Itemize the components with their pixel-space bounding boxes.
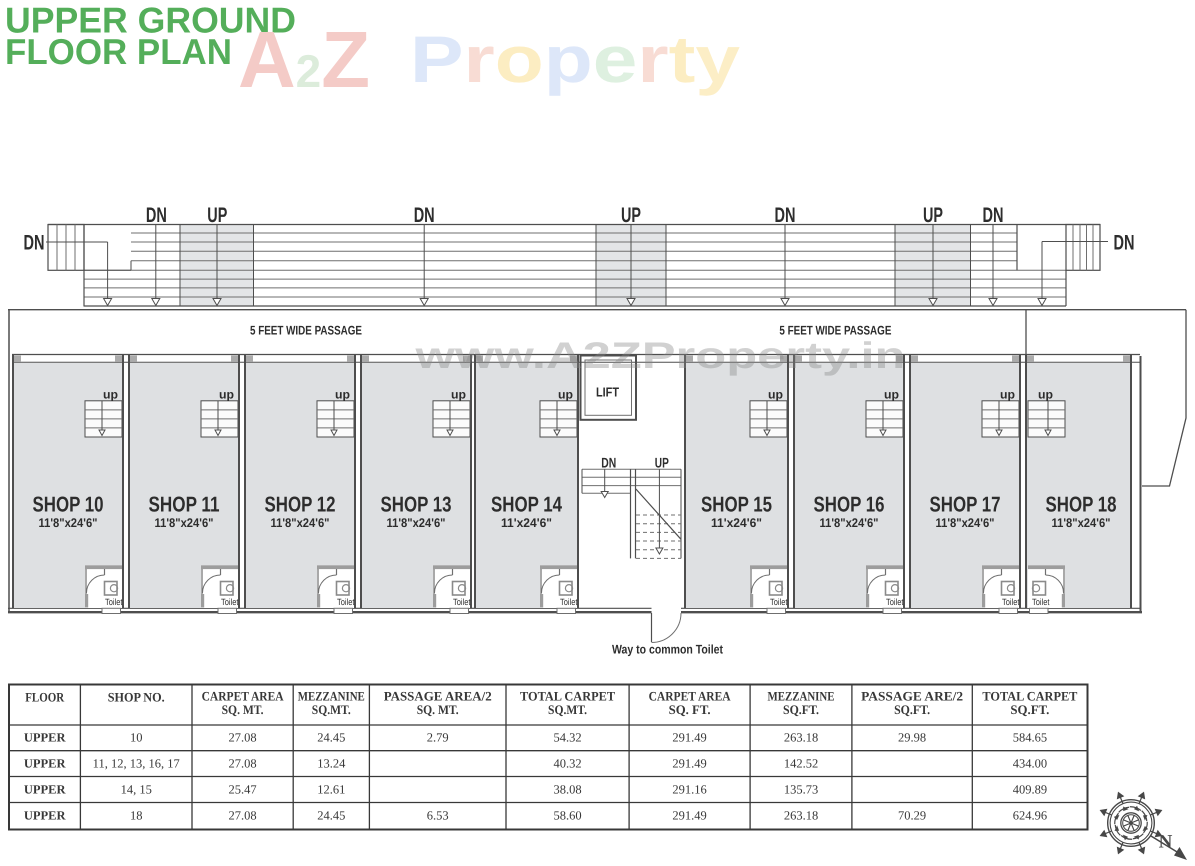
- svg-text:DN: DN: [601, 455, 616, 471]
- svg-text:263.18: 263.18: [784, 731, 818, 745]
- svg-text:Toilet: Toilet: [221, 597, 239, 607]
- svg-text:584.65: 584.65: [1013, 731, 1047, 745]
- svg-text:18: 18: [130, 809, 143, 823]
- svg-text:SQ.FT.: SQ.FT.: [1010, 702, 1049, 717]
- svg-text:UP: UP: [621, 204, 641, 227]
- svg-text:40.32: 40.32: [553, 757, 581, 771]
- svg-text:DN: DN: [1114, 232, 1135, 255]
- svg-text:Way to common Toilet: Way to common Toilet: [612, 643, 724, 657]
- svg-text:up: up: [335, 388, 350, 402]
- svg-text:291.49: 291.49: [672, 731, 706, 745]
- svg-text:Toilet: Toilet: [1032, 597, 1050, 607]
- svg-text:5 FEET WIDE PASSAGE: 5 FEET WIDE PASSAGE: [250, 323, 362, 337]
- svg-text:up: up: [451, 388, 466, 402]
- svg-text:291.49: 291.49: [672, 809, 706, 823]
- svg-text:11'8"x24'6": 11'8"x24'6": [1052, 516, 1111, 530]
- svg-text:Toilet: Toilet: [337, 597, 355, 607]
- svg-text:11'8"x24'6": 11'8"x24'6": [39, 516, 98, 530]
- svg-text:11, 12, 13, 16, 17: 11, 12, 13, 16, 17: [93, 757, 180, 771]
- svg-text:14, 15: 14, 15: [121, 783, 152, 797]
- svg-text:FLOOR: FLOOR: [25, 690, 65, 705]
- svg-text:24.45: 24.45: [317, 731, 345, 745]
- svg-text:291.16: 291.16: [672, 783, 706, 797]
- svg-text:SQ.FT.: SQ.FT.: [783, 702, 819, 717]
- svg-text:UPPER: UPPER: [24, 809, 67, 823]
- svg-text:up: up: [219, 388, 234, 402]
- svg-text:up: up: [768, 388, 783, 402]
- svg-text:6.53: 6.53: [427, 809, 449, 823]
- svg-text:SQ. FT.: SQ. FT.: [669, 702, 711, 717]
- svg-text:up: up: [1000, 388, 1015, 402]
- svg-text:291.49: 291.49: [672, 757, 706, 771]
- svg-text:DN: DN: [983, 204, 1004, 227]
- svg-text:SHOP 12: SHOP 12: [265, 493, 336, 517]
- svg-text:10: 10: [130, 731, 143, 745]
- svg-text:Toilet: Toilet: [105, 597, 123, 607]
- svg-text:434.00: 434.00: [1013, 757, 1047, 771]
- svg-text:SHOP 13: SHOP 13: [381, 493, 452, 517]
- svg-text:www.A2ZProperty.in: www.A2ZProperty.in: [414, 335, 905, 376]
- svg-text:UP: UP: [923, 204, 943, 227]
- svg-text:11'8"x24'6": 11'8"x24'6": [936, 516, 995, 530]
- svg-text:27.08: 27.08: [229, 731, 257, 745]
- svg-text:54.32: 54.32: [553, 731, 581, 745]
- svg-text:58.60: 58.60: [553, 809, 581, 823]
- svg-text:UP: UP: [207, 204, 227, 227]
- svg-text:DN: DN: [414, 204, 435, 227]
- svg-text:13.24: 13.24: [317, 757, 346, 771]
- svg-text:11'8"x24'6": 11'8"x24'6": [155, 516, 214, 530]
- svg-text:263.18: 263.18: [784, 809, 818, 823]
- svg-text:N: N: [1159, 832, 1173, 853]
- svg-text:UP: UP: [655, 455, 669, 471]
- svg-text:Toilet: Toilet: [770, 597, 788, 607]
- svg-text:12.61: 12.61: [317, 783, 345, 797]
- svg-text:SQ. MT.: SQ. MT.: [222, 702, 264, 717]
- svg-text:142.52: 142.52: [784, 757, 818, 771]
- svg-text:DN: DN: [775, 204, 796, 227]
- svg-text:11'x24'6": 11'x24'6": [711, 516, 762, 530]
- svg-text:SHOP 18: SHOP 18: [1046, 493, 1117, 517]
- svg-text:27.08: 27.08: [229, 757, 257, 771]
- svg-text:29.98: 29.98: [898, 731, 926, 745]
- svg-text:11'8"x24'6": 11'8"x24'6": [820, 516, 879, 530]
- svg-text:DN: DN: [146, 204, 167, 227]
- svg-text:409.89: 409.89: [1013, 783, 1047, 797]
- svg-text:Toilet: Toilet: [886, 597, 904, 607]
- svg-text:27.08: 27.08: [229, 809, 257, 823]
- svg-text:11'8"x24'6": 11'8"x24'6": [271, 516, 330, 530]
- svg-text:DN: DN: [24, 232, 45, 255]
- svg-text:SHOP 14: SHOP 14: [491, 493, 562, 517]
- svg-text:SHOP NO.: SHOP NO.: [108, 690, 165, 705]
- svg-text:SQ.MT.: SQ.MT.: [312, 702, 351, 717]
- svg-text:624.96: 624.96: [1013, 809, 1047, 823]
- svg-text:FLOOR PLAN: FLOOR PLAN: [5, 31, 232, 72]
- svg-text:SHOP 16: SHOP 16: [814, 493, 885, 517]
- svg-text:2.79: 2.79: [427, 731, 449, 745]
- svg-text:UPPER: UPPER: [24, 731, 67, 745]
- svg-text:SHOP 15: SHOP 15: [701, 493, 772, 517]
- svg-text:25.47: 25.47: [229, 783, 257, 797]
- svg-text:UPPER: UPPER: [24, 783, 67, 797]
- svg-text:SHOP 10: SHOP 10: [33, 493, 104, 517]
- svg-text:11'8"x24'6": 11'8"x24'6": [387, 516, 446, 530]
- svg-text:SHOP 11: SHOP 11: [149, 493, 220, 517]
- svg-text:Property: Property: [410, 22, 740, 96]
- svg-text:SHOP 17: SHOP 17: [930, 493, 1001, 517]
- svg-text:38.08: 38.08: [553, 783, 581, 797]
- svg-text:135.73: 135.73: [784, 783, 818, 797]
- svg-text:Toilet: Toilet: [453, 597, 471, 607]
- svg-text:up: up: [884, 388, 899, 402]
- svg-text:LIFT: LIFT: [596, 385, 619, 400]
- svg-text:up: up: [103, 388, 118, 402]
- svg-text:Toilet: Toilet: [1002, 597, 1020, 607]
- svg-text:SQ.MT.: SQ.MT.: [548, 702, 587, 717]
- svg-text:up: up: [558, 388, 573, 402]
- svg-text:up: up: [1038, 388, 1053, 402]
- svg-text:SQ. MT.: SQ. MT.: [417, 702, 459, 717]
- svg-text:SQ.FT.: SQ.FT.: [894, 702, 930, 717]
- svg-text:70.29: 70.29: [898, 809, 926, 823]
- svg-text:Toilet: Toilet: [560, 597, 578, 607]
- svg-text:24.45: 24.45: [317, 809, 345, 823]
- svg-text:UPPER: UPPER: [24, 757, 67, 771]
- svg-text:11'x24'6": 11'x24'6": [501, 516, 552, 530]
